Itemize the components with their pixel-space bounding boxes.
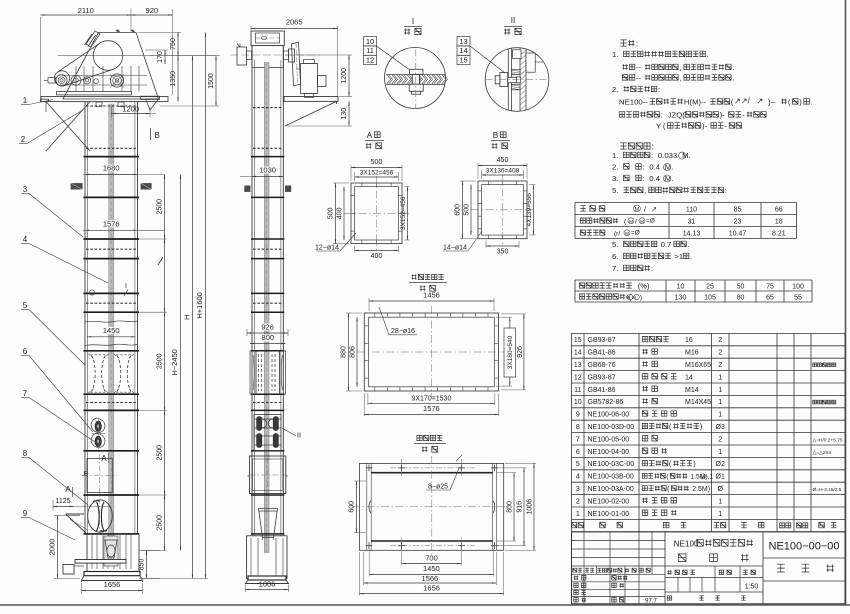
svg-text:NE100-03B-00: NE100-03B-00: [588, 474, 634, 481]
svg-text:2.: 2.: [612, 163, 618, 172]
svg-text:2500: 2500: [157, 353, 164, 369]
svg-text:H(M)--: H(M)--: [684, 98, 707, 107]
svg-text::: :: [651, 151, 653, 160]
svg-text:NE100-03C-00: NE100-03C-00: [588, 461, 635, 468]
svg-text::: :: [725, 186, 727, 195]
svg-text:916: 916: [517, 501, 524, 513]
svg-text:3.: 3.: [612, 174, 618, 183]
svg-text:13: 13: [459, 37, 467, 46]
svg-text:1680: 1680: [103, 163, 120, 172]
svg-text:M: M: [635, 207, 639, 213]
svg-text:1656: 1656: [423, 583, 440, 592]
svg-text:M16X65: M16X65: [685, 362, 711, 369]
svg-text:GB68-76: GB68-76: [588, 362, 616, 369]
svg-text:2.: 2.: [612, 85, 618, 94]
svg-text:M: M: [625, 231, 629, 236]
svg-text:3X152=456: 3X152=456: [400, 196, 407, 230]
svg-text:): ): [640, 295, 642, 302]
svg-text:Ø3: Ø3: [716, 424, 725, 431]
svg-text:NE100-02-00: NE100-02-00: [588, 498, 630, 505]
svg-text:0.4: 0.4: [649, 163, 660, 172]
svg-text:M: M: [632, 295, 636, 300]
svg-text:0.7: 0.7: [661, 240, 672, 249]
svg-text:14−ø14: 14−ø14: [443, 245, 467, 252]
svg-text:1.: 1.: [612, 151, 618, 160]
svg-text:66: 66: [775, 207, 783, 214]
svg-text:1006: 1006: [259, 580, 276, 589]
svg-text::: :: [651, 142, 653, 152]
svg-text:△=△2X4: △=△2X4: [813, 450, 832, 456]
svg-text:M14: M14: [685, 387, 699, 394]
svg-text:=Ø: =Ø: [631, 230, 640, 237]
svg-text:2110: 2110: [78, 6, 94, 15]
svg-text:Ø1: Ø1: [716, 474, 725, 481]
svg-text:Y: Y: [656, 122, 661, 131]
svg-text:↗↗/: ↗↗/: [734, 97, 750, 106]
svg-text:1350: 1350: [170, 71, 177, 87]
svg-text:M: M: [629, 219, 633, 224]
svg-text:Ø: Ø: [717, 486, 723, 493]
svg-text:75: 75: [766, 284, 774, 291]
svg-text:3: 3: [23, 185, 28, 194]
svg-text:12: 12: [574, 374, 582, 381]
svg-text:400: 400: [371, 253, 383, 260]
svg-text:0.4: 0.4: [649, 174, 660, 183]
svg-text:16: 16: [685, 337, 693, 344]
svg-text:55: 55: [794, 295, 802, 302]
svg-text:1576: 1576: [103, 219, 120, 228]
svg-text:)--: )--: [768, 98, 776, 107]
svg-text:B: B: [493, 131, 498, 140]
svg-text:.: .: [732, 63, 734, 72]
svg-text:9X170=1530: 9X170=1530: [411, 395, 451, 402]
svg-text:13: 13: [574, 362, 582, 369]
svg-text:,: ,: [679, 63, 681, 72]
svg-text:2: 2: [718, 362, 722, 369]
svg-text:NE100-03A-00: NE100-03A-00: [588, 486, 634, 493]
svg-text:1200: 1200: [122, 105, 139, 114]
svg-text:5: 5: [23, 301, 28, 310]
svg-text:1: 1: [718, 449, 722, 456]
svg-text:14: 14: [459, 46, 467, 55]
svg-text:NE100-01-00: NE100-01-00: [588, 511, 630, 518]
svg-text:.: .: [690, 252, 692, 261]
svg-text:6: 6: [576, 449, 580, 456]
svg-text:(: (: [663, 122, 666, 131]
svg-text:1500: 1500: [208, 73, 215, 89]
svg-text:2500: 2500: [157, 445, 164, 461]
svg-text:H−2450: H−2450: [170, 349, 179, 375]
svg-text:2: 2: [718, 436, 722, 443]
svg-text:8.21: 8.21: [772, 231, 786, 238]
svg-text:2: 2: [718, 337, 722, 344]
svg-text:920: 920: [146, 6, 159, 15]
svg-text:2500: 2500: [157, 199, 164, 215]
svg-text:): ): [799, 98, 802, 107]
svg-text:1566: 1566: [422, 574, 439, 583]
svg-text:-: -: [725, 122, 728, 131]
svg-text:130: 130: [341, 108, 348, 120]
svg-text:1200: 1200: [341, 68, 348, 84]
svg-text:400: 400: [337, 207, 344, 219]
svg-text:↗: ↗: [757, 97, 764, 106]
svg-text:△=H/0.2+5.75: △=H/0.2+5.75: [813, 437, 843, 443]
svg-text:M: M: [701, 474, 705, 479]
svg-text:NE100: NE100: [674, 540, 699, 549]
svg-text:GB5782-86: GB5782-86: [588, 399, 624, 406]
svg-text:9: 9: [23, 509, 28, 518]
svg-text:7: 7: [576, 436, 580, 443]
svg-text:500: 500: [328, 207, 335, 219]
svg-text:M16: M16: [685, 350, 699, 357]
svg-text:--: --: [636, 74, 642, 83]
svg-text:7.: 7.: [612, 264, 618, 273]
svg-text:4: 4: [23, 235, 28, 244]
svg-text:15: 15: [459, 56, 467, 65]
svg-text:23: 23: [734, 219, 742, 226]
svg-text:H+1600: H+1600: [195, 292, 204, 318]
svg-text:926: 926: [517, 346, 524, 358]
svg-text:9: 9: [576, 412, 580, 419]
svg-text:3X152=456: 3X152=456: [360, 169, 394, 176]
svg-text:130: 130: [675, 295, 687, 302]
svg-text:1: 1: [576, 511, 580, 518]
svg-text:31: 31: [688, 219, 696, 226]
svg-text:18: 18: [775, 219, 783, 226]
svg-text:500: 500: [464, 204, 471, 216]
svg-text::: :: [658, 85, 660, 94]
svg-text:GB93-87: GB93-87: [588, 337, 616, 344]
svg-text:50: 50: [737, 284, 745, 291]
svg-text:M14X45: M14X45: [685, 399, 711, 406]
svg-text:(: (: [788, 98, 791, 107]
svg-text:JZQ(: JZQ(: [668, 111, 686, 120]
svg-text:1656: 1656: [104, 580, 121, 589]
svg-text:1006: 1006: [527, 499, 534, 515]
svg-text:85: 85: [734, 207, 742, 214]
svg-text:4: 4: [576, 474, 580, 481]
svg-text:1450: 1450: [103, 326, 120, 335]
svg-text:1576: 1576: [423, 404, 440, 413]
svg-text:105: 105: [704, 295, 716, 302]
svg-text:Ø=H-3.15/2.5: Ø=H-3.15/2.5: [813, 487, 842, 493]
svg-text:-: -: [742, 111, 745, 120]
svg-text:14.13: 14.13: [683, 231, 701, 238]
svg-text:800: 800: [507, 501, 514, 513]
svg-text:3X180=540: 3X180=540: [507, 335, 514, 369]
svg-text:=Ø: =Ø: [646, 218, 655, 225]
svg-text:15: 15: [574, 337, 582, 344]
svg-text:2500: 2500: [157, 515, 164, 531]
svg-text::: :: [661, 111, 663, 120]
svg-text:800: 800: [262, 333, 275, 342]
svg-text::: :: [642, 174, 644, 183]
svg-text:80: 80: [737, 295, 745, 302]
svg-text:450: 450: [497, 157, 509, 164]
svg-text:3: 3: [576, 486, 580, 493]
svg-text:A: A: [101, 454, 107, 463]
svg-text:1.: 1.: [612, 50, 618, 59]
svg-text:1: 1: [718, 412, 722, 419]
svg-text:97.7: 97.7: [645, 598, 657, 604]
svg-text:1: 1: [718, 511, 722, 518]
svg-text:GB93-87: GB93-87: [588, 374, 616, 381]
svg-text:5.: 5.: [612, 186, 618, 195]
svg-text:--: --: [636, 63, 642, 72]
svg-text:10: 10: [574, 399, 582, 406]
svg-text:/: /: [644, 207, 646, 214]
svg-text:12: 12: [366, 56, 374, 65]
svg-text:1: 1: [718, 387, 722, 394]
svg-text:)-: )-: [720, 111, 726, 120]
svg-text:700: 700: [425, 553, 438, 562]
svg-text:(r/: (r/: [614, 231, 620, 238]
svg-text:NE100−00−00: NE100−00−00: [769, 541, 840, 553]
svg-text:3X136=408: 3X136=408: [486, 167, 520, 174]
svg-text:2065: 2065: [286, 18, 303, 27]
svg-text:6: 6: [23, 347, 28, 356]
svg-text:0.033: 0.033: [658, 151, 677, 160]
svg-text:M: M: [640, 219, 644, 224]
svg-text:.: .: [707, 50, 709, 59]
svg-text:I: I: [125, 283, 127, 290]
svg-text:806: 806: [350, 346, 357, 358]
svg-text:926: 926: [261, 323, 274, 332]
svg-text:14: 14: [685, 374, 693, 381]
svg-text:1: 1: [718, 399, 722, 406]
svg-text:28−ø16: 28−ø16: [391, 328, 415, 335]
svg-text:1:50: 1:50: [745, 584, 759, 591]
svg-text:850: 850: [139, 559, 146, 571]
svg-text:25: 25: [706, 284, 714, 291]
svg-text::: :: [651, 264, 653, 273]
svg-text:6.: 6.: [612, 252, 618, 261]
svg-text:(%): (%): [638, 282, 650, 291]
svg-text:1: 1: [718, 498, 722, 505]
svg-text:2: 2: [576, 498, 580, 505]
svg-text:GB41-86: GB41-86: [588, 350, 616, 357]
svg-text:1030: 1030: [259, 166, 276, 175]
svg-text:170: 170: [157, 51, 164, 63]
svg-text:I: I: [412, 17, 414, 26]
svg-text:.: .: [732, 74, 734, 83]
svg-text:.: .: [687, 240, 689, 249]
svg-text:4X139=556: 4X139=556: [526, 193, 533, 227]
svg-text:750: 750: [170, 38, 177, 50]
svg-text:2: 2: [718, 350, 722, 357]
svg-text::: :: [642, 163, 644, 172]
svg-text::: :: [636, 39, 638, 49]
svg-text:600: 600: [349, 501, 356, 513]
svg-text:12−ø14: 12−ø14: [315, 245, 339, 252]
svg-text:NE100-04-00: NE100-04-00: [588, 449, 630, 456]
svg-text:>1: >1: [674, 252, 683, 261]
svg-text:880: 880: [341, 346, 348, 358]
svg-text:1125: 1125: [55, 498, 70, 505]
svg-text:8: 8: [576, 424, 580, 431]
svg-text:1450: 1450: [423, 564, 440, 573]
svg-text:.: .: [810, 98, 812, 107]
svg-text:NE100--: NE100--: [619, 98, 648, 107]
svg-text:65: 65: [766, 295, 774, 302]
svg-text:5: 5: [576, 461, 580, 468]
svg-text:,: ,: [644, 186, 646, 195]
svg-text:II: II: [511, 16, 515, 25]
svg-text:A: A: [367, 131, 373, 140]
svg-text:GB41-86: GB41-86: [588, 387, 616, 394]
svg-text:7: 7: [23, 389, 28, 398]
svg-text:)-: )-: [702, 122, 708, 131]
svg-text:10: 10: [677, 284, 685, 291]
svg-text:1456: 1456: [423, 291, 440, 300]
svg-text:10.47: 10.47: [729, 231, 747, 238]
svg-text:M: M: [626, 295, 630, 300]
svg-text:1: 1: [23, 96, 28, 105]
svg-text:NE100-06-00: NE100-06-00: [588, 412, 630, 419]
svg-text:110: 110: [686, 207, 697, 214]
svg-text:500: 500: [371, 159, 383, 166]
svg-text:8−ø25: 8−ø25: [428, 484, 448, 491]
svg-text:100: 100: [792, 284, 804, 291]
svg-text:B: B: [155, 131, 160, 140]
svg-text:11: 11: [366, 46, 374, 55]
svg-text:10: 10: [366, 37, 374, 46]
svg-text:1: 1: [718, 374, 722, 381]
svg-text:2: 2: [21, 135, 26, 144]
svg-text:8: 8: [23, 449, 28, 458]
svg-text:↗: ↗: [651, 207, 657, 214]
svg-text:Ø2: Ø2: [716, 461, 725, 468]
svg-text:600: 600: [455, 204, 462, 216]
svg-text:NE100-05-00: NE100-05-00: [588, 436, 630, 443]
svg-text:5.: 5.: [612, 240, 618, 249]
svg-text:,: ,: [679, 74, 681, 83]
svg-text:2.5M): 2.5M): [692, 486, 710, 493]
svg-text:/: /: [635, 219, 637, 226]
svg-text:14: 14: [574, 350, 582, 357]
svg-text:350: 350: [497, 249, 509, 256]
svg-text:2000: 2000: [48, 539, 57, 556]
svg-text:H: H: [183, 314, 192, 319]
svg-text:NE100-03D-00: NE100-03D-00: [588, 424, 635, 431]
svg-text:11: 11: [574, 387, 581, 394]
svg-text:II: II: [297, 433, 301, 440]
